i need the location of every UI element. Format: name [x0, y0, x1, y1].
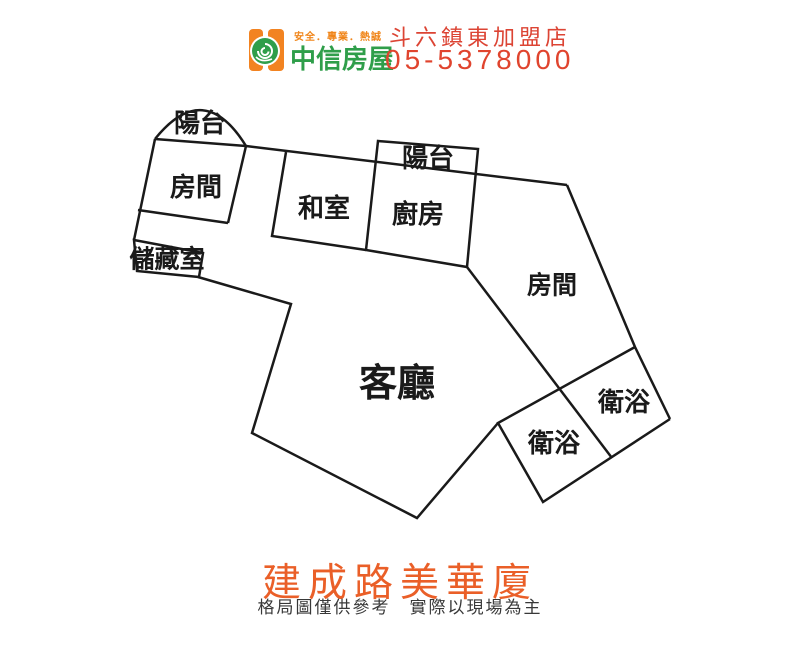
room-label-bathroom-1: 衛浴: [528, 430, 580, 456]
room-label-storage: 儲藏室: [129, 248, 204, 273]
room-label-bedroom-1: 房間: [170, 174, 222, 200]
room-label-balcony-2: 陽台: [402, 145, 454, 171]
wall-bedroom1-top: [155, 139, 246, 146]
wall-bedroom1-bottom: [138, 210, 228, 223]
wall-bathrooms: [498, 347, 670, 502]
room-label-bathroom-2: 衛浴: [598, 389, 650, 415]
wall-bedroom1-right: [228, 146, 246, 223]
disclaimer-text: 格局圖僅供參考 實際以現場為主: [0, 593, 800, 618]
room-label-balcony-1: 陽台: [174, 110, 226, 136]
room-label-tatami: 和室: [298, 195, 350, 221]
wall-living-room: [198, 277, 498, 518]
room-label-living-room: 客廳: [359, 365, 435, 403]
wall-right-outer: [567, 185, 670, 419]
room-label-bedroom-2: 房間: [527, 274, 577, 299]
wall-left-outer: [134, 139, 155, 240]
room-label-kitchen: 廚房: [392, 201, 444, 227]
